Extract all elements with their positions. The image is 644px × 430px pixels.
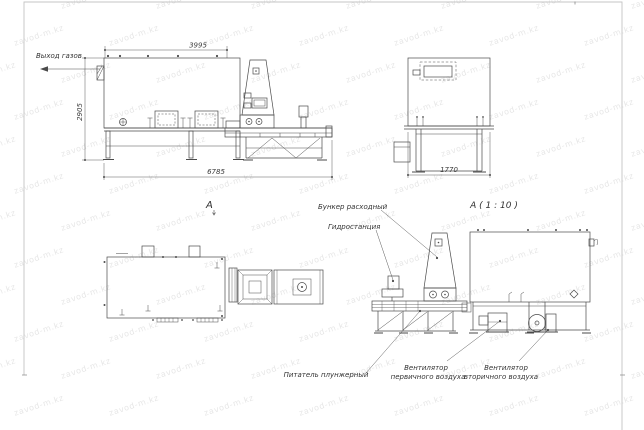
secondary-air-fan	[527, 314, 558, 332]
plunger-feeder	[372, 301, 471, 333]
gas-outlet-arrow	[40, 66, 100, 72]
end-view-body	[404, 58, 494, 129]
plan-body	[104, 246, 226, 322]
plunger-feeder-label: Питатель плунжерный	[284, 371, 369, 379]
secondary-fan-label-line1: Вентилятор	[484, 364, 528, 372]
primary-fan-label-line2: первичного воздуха	[391, 373, 466, 381]
gas-outlet-label: Выход газов	[36, 52, 82, 60]
technical-drawing-svg: Выход газов 3995 2905 6785 1770 А А ( 1 …	[0, 0, 644, 430]
hydraulic-station	[382, 276, 403, 301]
hydraulic-station-label: Гидростанция	[328, 223, 380, 231]
detail-view-label: А ( 1 : 10 )	[469, 201, 518, 211]
hopper-tower-side	[226, 60, 274, 128]
plan-view-label: А	[205, 200, 213, 211]
top-hatches	[120, 111, 226, 128]
plan-hopper	[229, 268, 272, 304]
dimension-3995	[104, 46, 228, 58]
callout-leaders	[366, 210, 549, 373]
chimney-stub	[299, 106, 308, 128]
conveyor-side	[225, 126, 332, 160]
end-view	[394, 58, 494, 178]
detail-view	[366, 210, 598, 373]
dim-2905-label: 2905	[76, 103, 84, 121]
primary-air-fan	[479, 313, 509, 332]
secondary-fan-label-line2: вторичного воздуха	[464, 373, 538, 381]
primary-fan-label-line1: Вентилятор	[404, 364, 448, 372]
dim-3995-label: 3995	[189, 42, 207, 50]
dim-6785-label: 6785	[207, 168, 225, 176]
support-legs-side	[103, 128, 332, 160]
feed-hopper-tower	[424, 233, 456, 301]
drawing-canvas: zavod-m.kzzavod-m.kzzavod-m.kzzavod-m.kz…	[0, 0, 644, 430]
plan-fan	[274, 270, 323, 304]
text-labels: Выход газов 3995 2905 6785 1770 А А ( 1 …	[36, 42, 538, 382]
dim-1770-label: 1770	[440, 166, 458, 174]
plan-view	[104, 246, 324, 322]
plan-view-label-arrow	[213, 210, 216, 215]
boiler-body-side	[97, 55, 240, 128]
sheet-frame	[22, 2, 625, 430]
feed-hopper-label: Бункер расходный	[318, 203, 388, 211]
